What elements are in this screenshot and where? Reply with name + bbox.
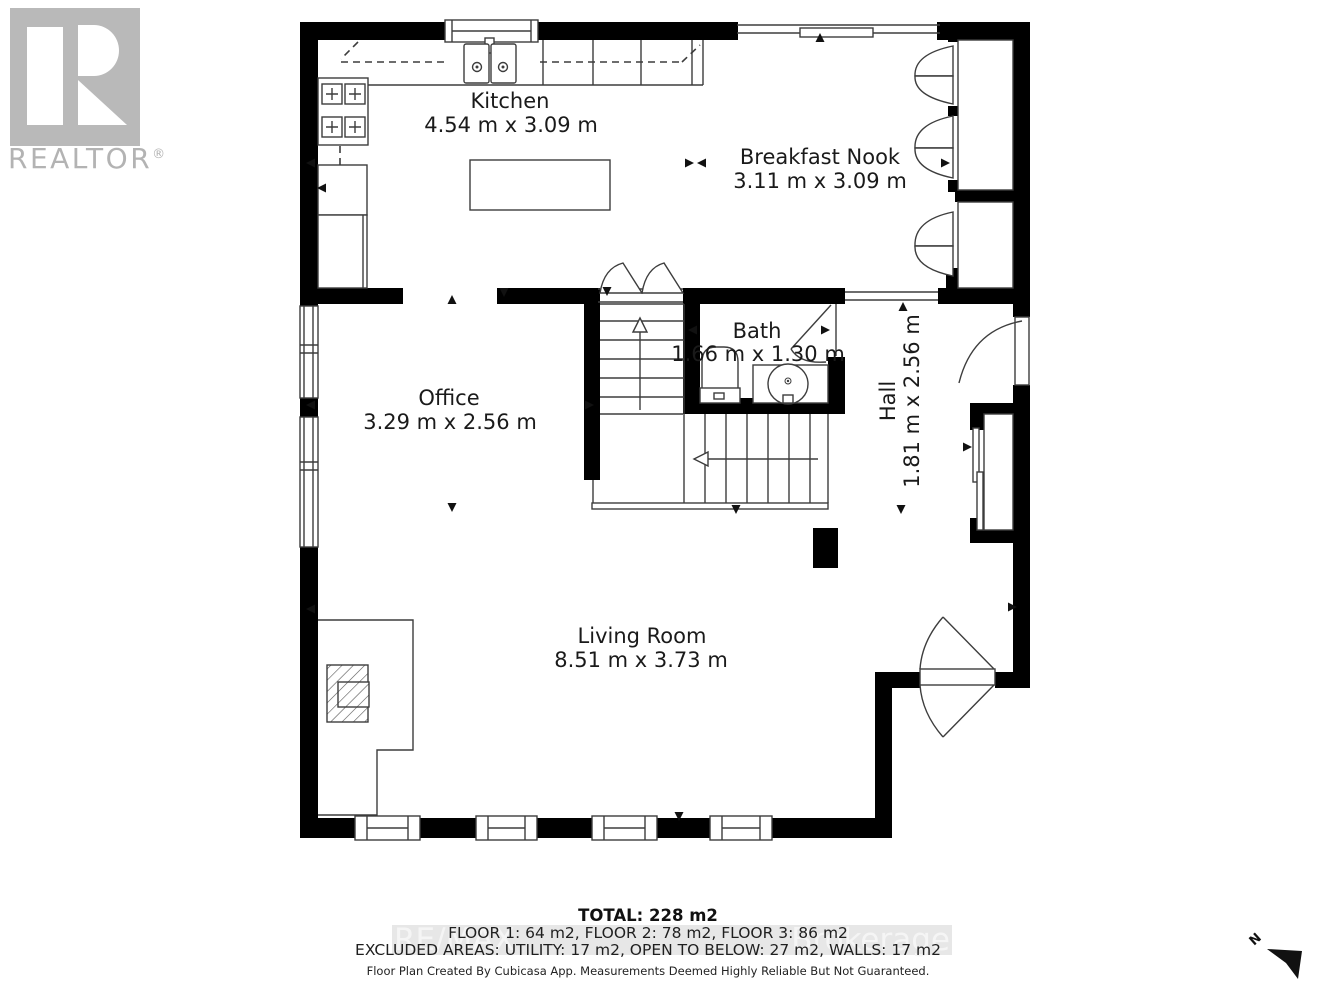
room-dims-living-room: 8.51 m x 3.73 m [554, 648, 728, 672]
floor-plan-svg: RE/MAX Brokerage REALTOR® [0, 0, 1333, 1000]
room-label-bath: Bath [733, 319, 782, 343]
stove [318, 78, 368, 145]
window-living-1 [355, 816, 420, 840]
living-swing-door [920, 617, 995, 737]
room-dims-hall: 1.81 m x 2.56 m [900, 314, 924, 488]
stairs-landing-edge [592, 503, 828, 509]
window-living-3 [592, 816, 657, 840]
upper-cabinet-dashed [341, 42, 700, 62]
window-office-upper [300, 306, 318, 398]
kitchen-fixtures [318, 38, 703, 288]
window-nook [737, 25, 940, 37]
window-living-4 [710, 816, 772, 840]
kitchen-left-cabinets [318, 165, 367, 288]
north-label: N [1247, 931, 1265, 949]
floor-areas-text: FLOOR 1: 64 m2, FLOOR 2: 78 m2, FLOOR 3:… [448, 924, 848, 942]
excluded-areas-text: EXCLUDED AREAS: UTILITY: 17 m2, OPEN TO … [355, 941, 941, 959]
chimney [813, 528, 838, 568]
hall-elements [845, 292, 1029, 737]
nook-closets [915, 40, 1013, 288]
realtor-logo-text: REALTOR® [8, 142, 168, 175]
kitchen-island [470, 160, 610, 210]
room-label-kitchen: Kitchen [471, 89, 550, 113]
fireplace [318, 620, 413, 815]
north-arrow: N [1247, 931, 1302, 979]
footer: TOTAL: 228 m2 FLOOR 1: 64 m2, FLOOR 2: 7… [355, 906, 941, 978]
room-dims-bath: 1.66 m x 1.30 m [671, 342, 845, 366]
window-living-2 [476, 816, 537, 840]
realtor-logo: REALTOR® [8, 8, 168, 175]
room-label-living-room: Living Room [578, 624, 707, 648]
disclaimer-text: Floor Plan Created By Cubicasa App. Meas… [367, 964, 930, 978]
entry-door [959, 317, 1029, 385]
closet-double-doors [915, 46, 953, 276]
room-label-breakfast-nook: Breakfast Nook [740, 145, 901, 169]
hall-closet [973, 414, 1013, 530]
north-arrow-icon [1267, 949, 1302, 979]
room-dims-breakfast-nook: 3.11 m x 3.09 m [733, 169, 907, 193]
room-label-hall: Hall [876, 381, 900, 421]
bath-sink [753, 364, 828, 404]
kitchen-sink [464, 38, 516, 83]
room-label-office: Office [418, 386, 479, 410]
window-office-lower [300, 417, 318, 547]
room-dims-office: 3.29 m x 2.56 m [363, 410, 537, 434]
nook-hall-opening [845, 292, 938, 300]
room-dims-kitchen: 4.54 m x 3.09 m [424, 113, 598, 137]
floor-plan-page: { "realtor_logo": { "text": "REALTOR", "… [0, 0, 1333, 1000]
total-area-text: TOTAL: 228 m2 [578, 906, 718, 925]
